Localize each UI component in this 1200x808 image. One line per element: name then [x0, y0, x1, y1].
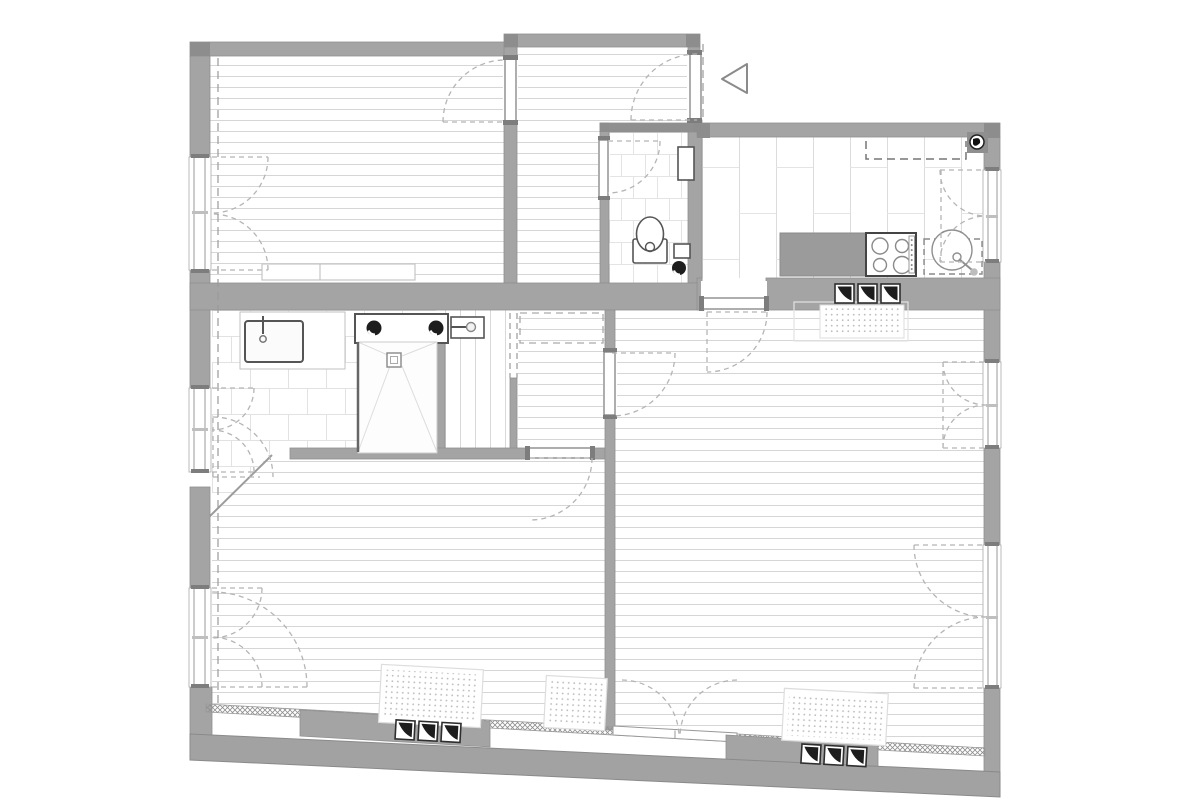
floor-plan-drawing [0, 0, 1200, 808]
radiator-bottom-left-2 [544, 675, 608, 730]
burner-icon [896, 240, 909, 253]
wall-corridor-closet [510, 378, 517, 452]
door-entrance [687, 50, 702, 123]
kitchen-counter-block [780, 233, 866, 276]
dashed-open-partition [510, 313, 517, 378]
burner-icon [874, 259, 887, 272]
wall-right-pier-4 [984, 688, 1000, 778]
shower-drain-icon [387, 353, 401, 367]
shower [358, 342, 437, 453]
wall-hall-left-lower [504, 122, 517, 283]
floor-closet [518, 310, 605, 452]
door-wc [598, 136, 610, 200]
window-left-3 [189, 585, 211, 688]
floor-entry-hall-lower [517, 123, 600, 283]
wc-drain-icon [672, 261, 686, 275]
floor-living-room [615, 310, 984, 748]
door-kitchen-living [699, 281, 769, 311]
low-cabinet [262, 264, 415, 280]
vent-group-bottom-left [395, 720, 461, 743]
window-left-1 [189, 154, 211, 273]
wall-divider-upper [605, 310, 615, 352]
bath-sink [240, 312, 345, 369]
wall-right-pier-2 [984, 262, 1000, 362]
cooktop [866, 233, 916, 276]
burner-icon [894, 257, 911, 274]
wall-band-main [190, 283, 704, 310]
window-left-2 [189, 385, 211, 473]
wc-cabinet [678, 147, 694, 180]
burner-icon [872, 238, 888, 254]
entrance-direction-marker-icon [722, 64, 747, 93]
window-right-2 [983, 359, 1001, 449]
floor-entry-hall-upper [517, 47, 688, 123]
kitchen-corner-unit [967, 132, 988, 153]
sink-tap-base [970, 268, 978, 276]
radiator-bottom-left-1 [378, 664, 483, 727]
double-outlet-unit [355, 314, 448, 343]
floor-room-top-left [210, 56, 504, 283]
wall-hall-top [504, 34, 700, 47]
door-closet-living [603, 348, 617, 419]
radiator-bottom-right [782, 688, 889, 745]
window-right-1 [983, 167, 1001, 263]
wall-right-pier-3 [984, 448, 1000, 545]
window-right-3 [983, 542, 1001, 689]
vent-group-bottom-right [801, 744, 867, 767]
wc-floor-box [674, 244, 690, 258]
wall-left-pier-3 [190, 487, 210, 588]
basin-tap-icon [467, 323, 476, 332]
floor-plan-canvas [0, 0, 1200, 808]
vent-group-kitchen [835, 284, 900, 303]
wall-wc-top [600, 123, 700, 132]
wall-top [190, 42, 517, 56]
wall-kitchen-top [697, 123, 1000, 137]
wall-wc-left-lower [600, 198, 609, 283]
wall-left-pier-1 [190, 56, 210, 157]
door-room-top-left [503, 55, 518, 125]
hand-basin [451, 317, 484, 338]
floors [208, 47, 984, 748]
